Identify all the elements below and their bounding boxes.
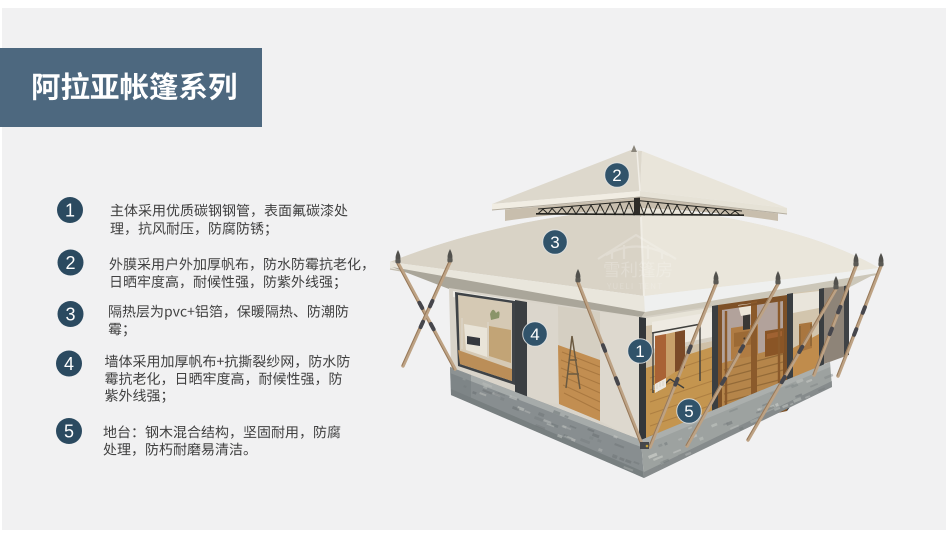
svg-text:2: 2 xyxy=(65,253,75,273)
svg-text:1: 1 xyxy=(635,342,644,361)
svg-text:4: 4 xyxy=(530,325,539,344)
svg-text:5: 5 xyxy=(684,402,693,421)
svg-text:1: 1 xyxy=(65,201,75,221)
svg-text:3: 3 xyxy=(65,305,75,325)
svg-text:3: 3 xyxy=(550,233,559,252)
svg-text:4: 4 xyxy=(64,354,74,374)
svg-text:2: 2 xyxy=(612,166,621,185)
svg-text:5: 5 xyxy=(64,422,74,442)
